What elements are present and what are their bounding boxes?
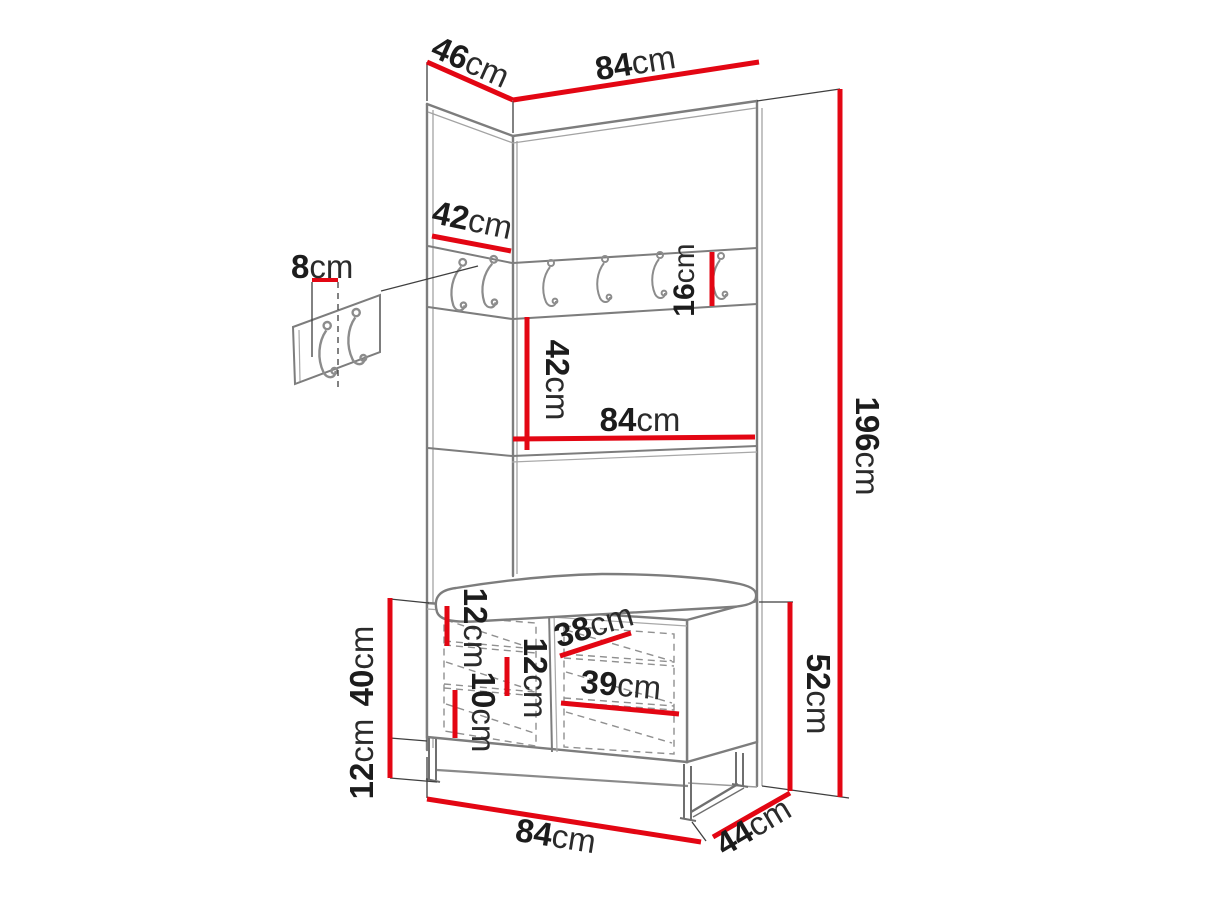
coat-hook-icon [652, 252, 666, 298]
dim-label-top-depth: 46cm [426, 28, 515, 95]
dim-label-inner-top: 12cm [457, 588, 494, 669]
coat-hook-icon [543, 260, 557, 306]
dim-label-bench-body-height: 40cm [343, 626, 380, 707]
dim-label-bench-width: 84cm [513, 811, 599, 860]
diagram-svg: 46cm 84cm 42cm 8cm 16cm 42cm 84cm 196cm … [0, 0, 1214, 911]
dim-label-rail-to-shelf: 42cm [539, 340, 576, 421]
dimension-diagram: 46cm 84cm 42cm 8cm 16cm 42cm 84cm 196cm … [0, 0, 1214, 911]
bench-leg [732, 752, 748, 787]
coat-hook-icon [450, 258, 470, 311]
hook-rail-top-seam [428, 246, 757, 263]
hook-panel-leader-line [381, 266, 478, 291]
dim-label-total-height: 196cm [849, 396, 886, 495]
top-edges [427, 101, 757, 136]
coat-hook-icon [597, 256, 611, 302]
coat-hook-icon [481, 255, 501, 308]
dim-label-top-width: 84cm [592, 38, 678, 87]
bench-side-face [687, 601, 757, 762]
dim-label-inner-middle: 12cm [517, 638, 554, 719]
hook-panel-detail [293, 295, 380, 384]
dim-label-inner-width-lower: 39cm [579, 663, 663, 707]
dim-label-shelf-width: 84cm [600, 401, 681, 438]
dim-label-inner-bottom: 10cm [465, 672, 502, 753]
coat-hook-icon [713, 253, 727, 299]
bench-leg-stretcher [691, 784, 738, 812]
hook-rail-bottom-seam [428, 304, 757, 319]
dim-label-bench-total-height: 52cm [800, 654, 837, 735]
bench-leg [680, 764, 696, 821]
dim-label-leg-height: 12cm [343, 719, 380, 800]
bench-leg-stretcher-inner [693, 788, 744, 817]
bench-stretcher-bar [437, 770, 688, 786]
dim-label-hook-offset: 8cm [291, 248, 353, 285]
wardrobe-seams [428, 246, 757, 456]
dim-label-rail-height: 16cm [668, 243, 701, 316]
